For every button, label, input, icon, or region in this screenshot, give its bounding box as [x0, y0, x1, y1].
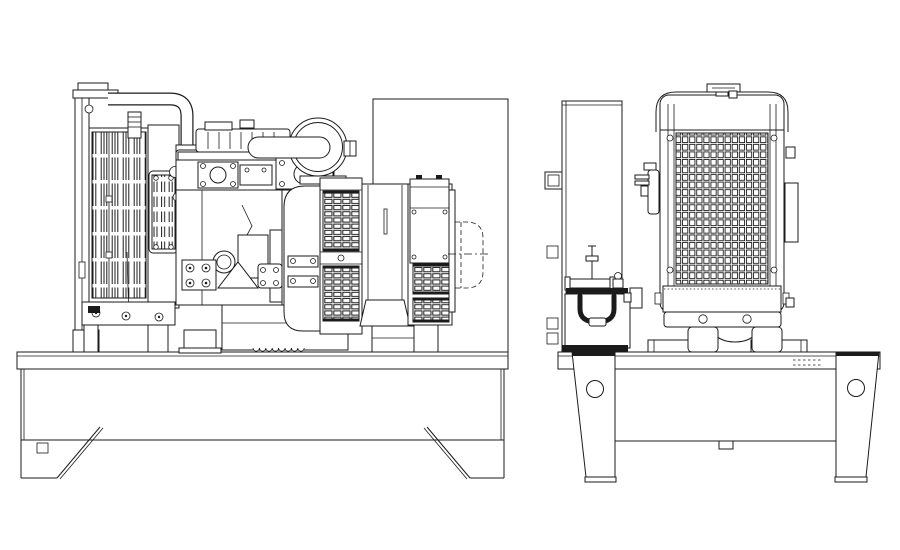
- radiator-front: [624, 84, 807, 352]
- inlet-elbow: [635, 163, 659, 214]
- alternator-foot: [360, 300, 410, 326]
- bottom-tank: [663, 286, 781, 312]
- panel-bracket: [545, 172, 562, 189]
- engine-pedestal-pad: [179, 348, 221, 353]
- battery-top-strip: [566, 288, 628, 294]
- cross-member: [615, 369, 836, 441]
- radiator-foot-right: [752, 327, 782, 352]
- left-leg-foot: [585, 477, 616, 482]
- oil-pan-scallops: [253, 348, 304, 351]
- intake-pipe: [248, 137, 330, 158]
- drawing-canvas: [0, 0, 900, 550]
- radiator-foot-left: [688, 327, 718, 352]
- base-rail: [17, 352, 508, 369]
- strap-grip: [589, 318, 606, 326]
- front-elevation-view: [545, 84, 880, 482]
- right-diagonal-brace: [427, 427, 470, 478]
- panel-tab: [547, 333, 558, 344]
- rear-vent-grille-upper: [413, 264, 449, 294]
- mounting-plate: [664, 312, 781, 327]
- side-elevation-view: [17, 83, 508, 479]
- lower-fitting: [630, 288, 642, 308]
- base-notch: [37, 443, 48, 453]
- engine-pedestal: [184, 330, 216, 349]
- radiator-core-slats: [92, 132, 146, 298]
- lifting-hole-right: [848, 380, 865, 397]
- flywheel-housing: [284, 186, 323, 331]
- radiator-side: [73, 83, 179, 352]
- alternator-vent-grille-lower: [323, 266, 359, 321]
- rear-vent-grille-lower: [413, 298, 449, 322]
- left-diagonal-brace: [57, 427, 100, 478]
- alternator-vent-grille-upper: [323, 191, 359, 251]
- breather: [240, 120, 254, 128]
- drain-cock: [88, 306, 100, 313]
- panel-tab: [547, 246, 558, 258]
- base-frame-front: [558, 352, 880, 482]
- battery-tray: [562, 345, 628, 352]
- right-side-plate: [785, 183, 798, 242]
- hose-bracket: [128, 112, 141, 138]
- generator-technical-drawing: [0, 0, 900, 550]
- radiator-core-mesh: [676, 133, 768, 284]
- lifting-hole-left: [587, 381, 604, 398]
- alternator-pedestal: [372, 326, 414, 352]
- louver-slats: [152, 175, 175, 249]
- radiator-cap-side: [78, 83, 108, 90]
- filler-neck-bolt: [85, 105, 93, 113]
- right-leg-foot: [835, 477, 867, 482]
- right-tab: [786, 147, 795, 158]
- battery-terminal: [615, 273, 622, 280]
- center-tab: [719, 441, 733, 449]
- base-frame-side: [17, 352, 508, 479]
- left-leg: [572, 352, 615, 477]
- terminal-box: [410, 179, 449, 263]
- cap-knob: [729, 91, 737, 98]
- oil-filler-cap: [205, 122, 232, 130]
- right-leg: [836, 352, 879, 477]
- battery-clamp-bar: [568, 279, 612, 288]
- panel-tab: [547, 318, 558, 329]
